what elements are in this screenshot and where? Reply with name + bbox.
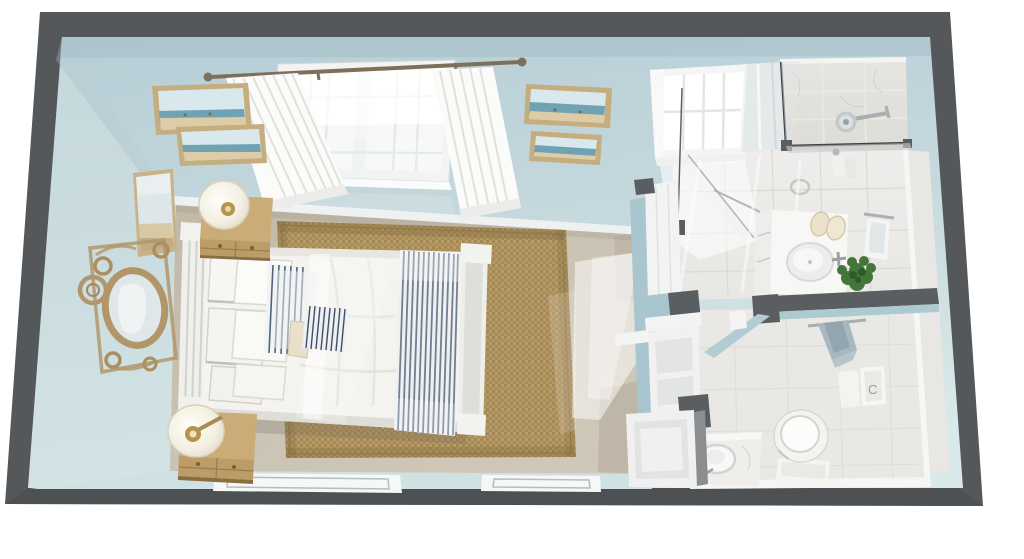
svg-text:C: C (868, 382, 877, 397)
